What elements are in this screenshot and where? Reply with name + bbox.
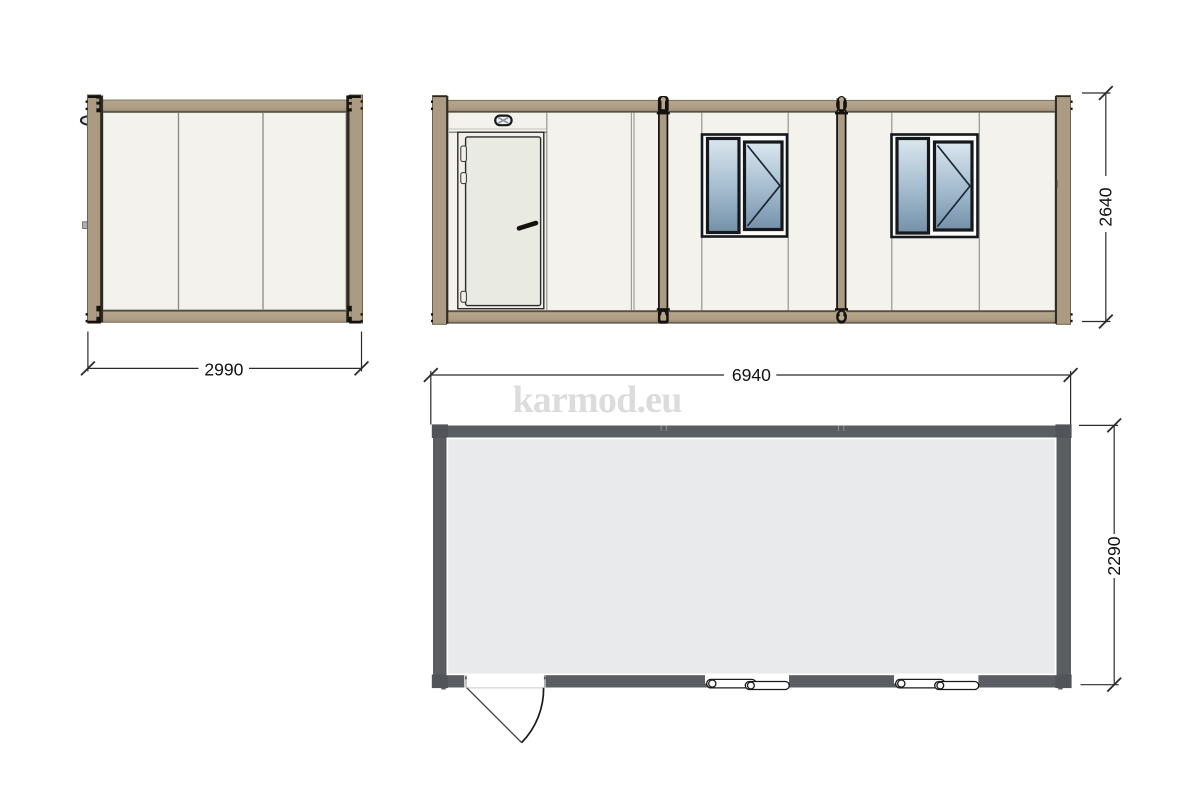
svg-text:2640: 2640 bbox=[1096, 187, 1116, 226]
svg-text:6940: 6940 bbox=[732, 365, 771, 385]
svg-text:2290: 2290 bbox=[1104, 536, 1124, 575]
svg-text:karmod.eu: karmod.eu bbox=[512, 379, 682, 421]
svg-text:2990: 2990 bbox=[204, 360, 243, 380]
